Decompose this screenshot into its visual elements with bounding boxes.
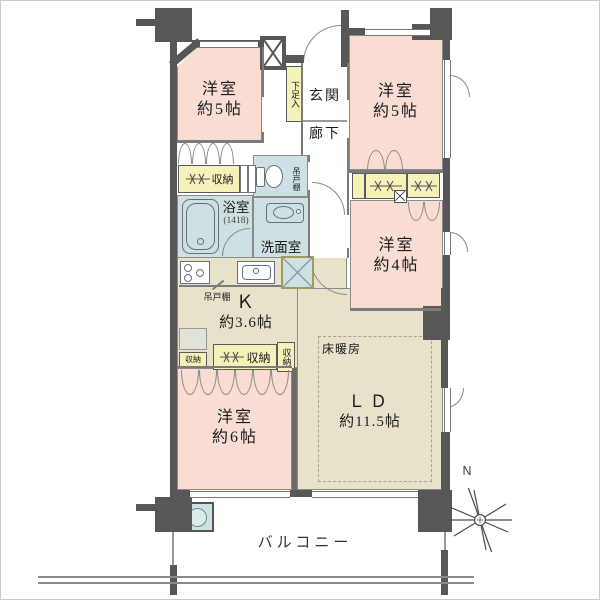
wall-east-2 — [443, 158, 450, 232]
wall-thin — [347, 248, 349, 258]
kitchen-area: 約3.6帖 — [196, 314, 296, 332]
window — [200, 41, 258, 48]
floor-heating-label: 床暖房 — [322, 342, 374, 356]
living-dining-area: 約11.5帖 — [304, 413, 436, 431]
bedroom-e-window-arc — [450, 232, 468, 252]
entrance-door-arc — [303, 25, 341, 63]
window — [444, 232, 451, 255]
wall-thin — [349, 170, 443, 173]
entrance-step-line — [303, 120, 347, 122]
bedroom-ne-window-arc — [450, 75, 470, 97]
x-mark-icon — [283, 258, 312, 287]
x-mark-icon — [395, 191, 405, 201]
hanger-pipe-icon — [185, 173, 211, 185]
compass-rose-icon — [430, 460, 522, 564]
pipe-space — [394, 190, 407, 203]
balcony-wall-left — [170, 565, 177, 595]
wall-pillar-ne-b — [430, 8, 452, 40]
washbasin-tap — [296, 209, 301, 214]
toilet-bowl-icon — [265, 165, 283, 188]
wall-pillar-sw — [155, 497, 192, 532]
bedroom-nw-area: 約5帖 — [177, 100, 263, 119]
closet-door-slit — [248, 165, 256, 193]
storage-west-label: 収納 — [212, 171, 234, 187]
folding-door — [220, 143, 234, 164]
bedroom-sw-area: 約6帖 — [180, 428, 290, 447]
bedroom-sw-label: 洋室 — [180, 408, 290, 427]
bedroom-e-area: 約4帖 — [350, 256, 443, 275]
wall-south-a — [177, 490, 190, 497]
folding-door — [178, 143, 192, 164]
stove-burner — [184, 274, 192, 282]
wall-thin — [292, 368, 297, 490]
hanging-shelf-wc-label: 吊戸棚 — [288, 163, 300, 195]
window — [312, 491, 418, 498]
living-dining-label: ＬＤ — [304, 392, 436, 412]
wall-thin — [347, 138, 349, 215]
window — [444, 60, 451, 158]
washbasin-bowl — [273, 206, 294, 219]
wall-thin — [177, 366, 292, 368]
kitchen-sink-tap — [253, 268, 259, 274]
bath-drain — [197, 238, 204, 245]
wall-entrance-left — [284, 55, 304, 63]
washer-space — [281, 256, 314, 289]
storage-west: 収納 — [178, 165, 240, 193]
wall-entrance-right — [341, 10, 349, 67]
window — [190, 491, 290, 498]
washroom-label: 洗面室 — [251, 240, 311, 256]
hanger-pipe-icon — [219, 351, 245, 363]
wall-pillar-nw — [155, 8, 192, 42]
wall-pillar-e — [423, 306, 450, 340]
folding-door — [206, 143, 220, 164]
wall-north-b — [349, 28, 365, 35]
bedroom-e-label: 洋室 — [350, 236, 443, 255]
balcony-rail — [38, 582, 474, 584]
wall-east-4 — [441, 340, 448, 388]
closet-e — [407, 173, 440, 198]
storage-sw-small: 収納 — [179, 352, 207, 367]
compass: N — [430, 460, 522, 564]
wall-south-pier — [290, 490, 312, 497]
storage-ne-small — [352, 173, 365, 199]
folding-door — [192, 143, 206, 164]
wall-tick-nw — [136, 19, 155, 26]
bedroom-ne-area: 約5帖 — [349, 102, 443, 121]
stove-burner — [196, 269, 204, 277]
wall-west — [170, 40, 177, 498]
x-mark-icon — [264, 40, 282, 66]
window — [365, 29, 430, 36]
wall-thin — [177, 140, 264, 143]
entrance-label: 玄関 — [300, 89, 350, 106]
hanger-pipe-icon — [410, 180, 438, 192]
wall-east-3 — [443, 255, 450, 290]
storage-sw-side-label: 収納 — [282, 348, 291, 366]
hallway-label: 廊下 — [301, 127, 349, 144]
balcony-label: バルコニー — [243, 534, 367, 552]
floor-plan: 下足入 収納 収納 収納 収納 — [0, 0, 600, 600]
closet-door-slit — [240, 165, 248, 193]
bathroom-label: 浴室 — [219, 200, 253, 216]
toilet-icon — [256, 167, 265, 187]
wall-thin — [350, 308, 441, 311]
wall-tick-sw — [136, 504, 155, 511]
stove-burner — [184, 264, 192, 272]
storage-sw-small-label: 収納 — [185, 354, 201, 365]
wall-thin — [308, 155, 310, 162]
balcony-divider — [172, 532, 174, 565]
storage-sw-main-label: 収納 — [246, 349, 270, 366]
hanging-shelf-kitchen-label: 吊戸棚 — [198, 292, 236, 303]
kitchen-counter-edge — [179, 285, 281, 287]
balcony-rail — [38, 576, 474, 578]
shoe-cabinet-label: 下足入 — [290, 81, 299, 108]
wall-east-1 — [443, 40, 450, 60]
bedroom-nw-label: 洋室 — [177, 80, 263, 99]
compass-north-label: N — [458, 464, 476, 479]
bathroom-size: (1418) — [219, 216, 253, 227]
bedroom-ne-label: 洋室 — [349, 82, 443, 101]
window — [444, 388, 451, 432]
